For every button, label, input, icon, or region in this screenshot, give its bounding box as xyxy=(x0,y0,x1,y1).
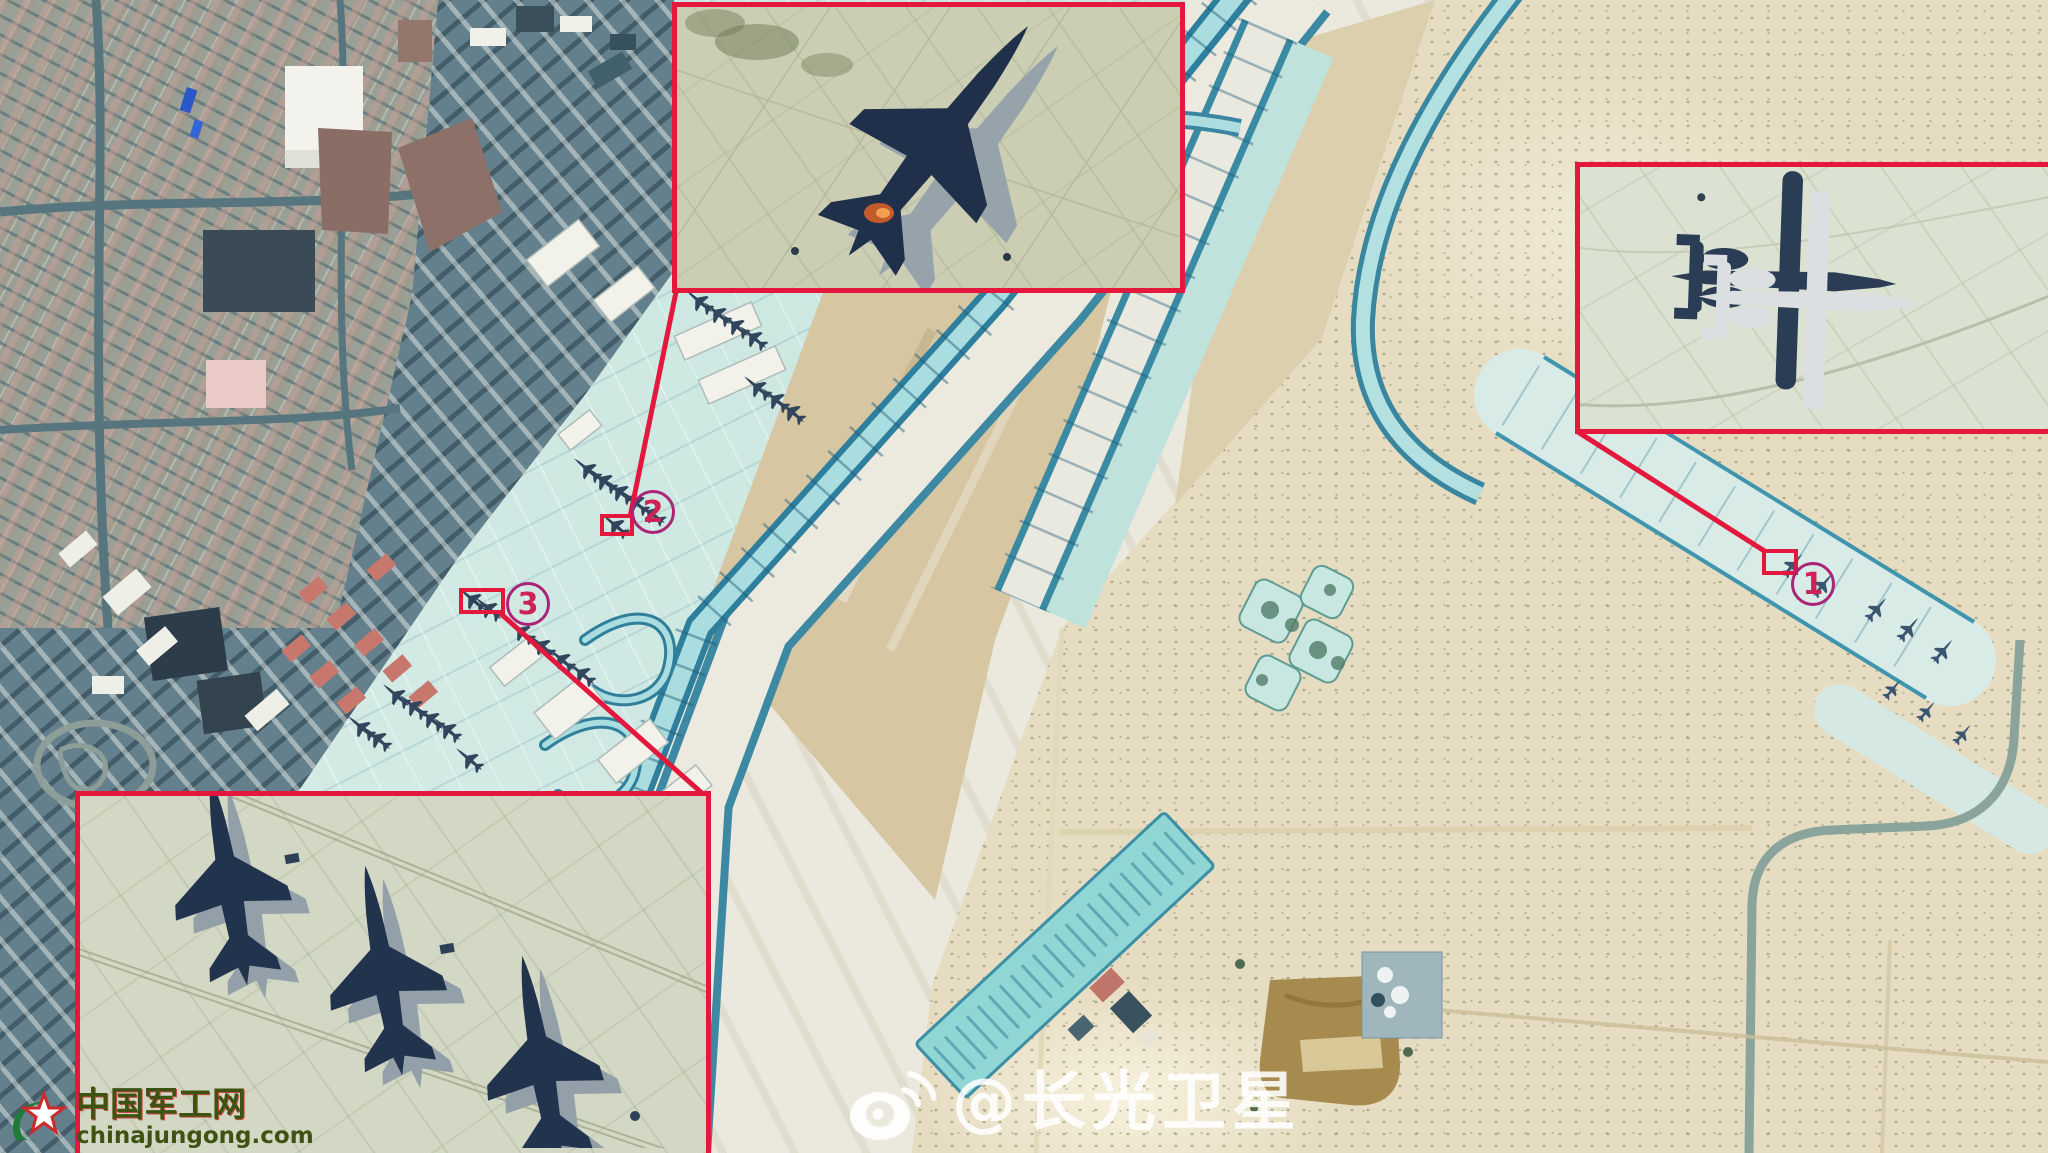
star-swoosh-icon xyxy=(8,1088,72,1148)
marker-number-3: 3 xyxy=(506,582,550,626)
satellite-image: 1 2 3 @长光卫星 中国军工网 chinajungong.com xyxy=(0,0,2048,1153)
marker-box-3 xyxy=(459,588,505,614)
inset-a10-closeup xyxy=(1575,162,2048,434)
weibo-icon xyxy=(838,1064,938,1142)
marker-box-2 xyxy=(600,514,634,536)
a10-aircraft-icon xyxy=(1695,187,1928,413)
site-url: chinajungong.com xyxy=(76,1124,314,1148)
marker-digit: 3 xyxy=(518,587,539,622)
weibo-watermark: @长光卫星 xyxy=(838,1064,1302,1142)
marker-number-1: 1 xyxy=(1791,562,1835,606)
marker-number-2: 2 xyxy=(631,490,675,534)
watermark-handle: @长光卫星 xyxy=(952,1071,1302,1135)
marker-digit: 2 xyxy=(643,495,664,530)
f15-jet-icon xyxy=(785,7,1091,288)
marker-digit: 1 xyxy=(1803,567,1824,602)
site-name: 中国军工网 xyxy=(76,1088,314,1124)
marker-box-1 xyxy=(1762,549,1798,575)
inset-f15-closeup xyxy=(672,2,1185,293)
site-logo: 中国军工网 chinajungong.com xyxy=(8,1088,314,1148)
